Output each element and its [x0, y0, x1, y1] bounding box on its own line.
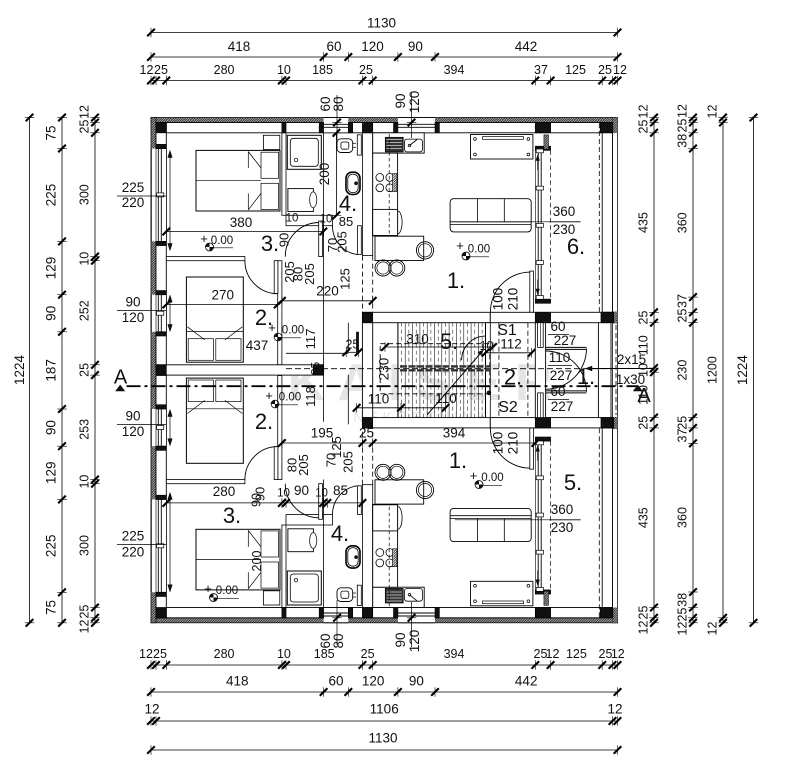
svg-text:125: 125 [338, 268, 353, 290]
svg-text:110: 110 [549, 350, 571, 365]
svg-text:S1: S1 [497, 322, 517, 339]
svg-text:0.00: 0.00 [282, 325, 304, 337]
svg-text:25: 25 [676, 416, 690, 430]
svg-text:6.: 6. [567, 234, 585, 259]
svg-text:435: 435 [637, 507, 651, 528]
svg-text:227: 227 [551, 399, 574, 414]
svg-text:220: 220 [122, 545, 145, 560]
svg-text:435: 435 [637, 212, 651, 233]
svg-text:310: 310 [406, 332, 429, 347]
svg-text:5.: 5. [564, 470, 582, 495]
svg-text:10: 10 [78, 252, 92, 266]
svg-text:227: 227 [554, 333, 577, 348]
svg-text:200: 200 [250, 551, 264, 572]
svg-text:394: 394 [443, 426, 466, 441]
svg-text:1224: 1224 [735, 355, 750, 386]
svg-text:90: 90 [409, 674, 424, 689]
svg-text:12: 12 [144, 702, 159, 717]
svg-text:12: 12 [613, 63, 627, 77]
svg-text:12: 12 [706, 105, 720, 119]
svg-text:360: 360 [551, 502, 574, 517]
svg-text:120: 120 [407, 630, 422, 653]
svg-text:418: 418 [226, 674, 249, 689]
svg-text:120: 120 [122, 310, 145, 325]
svg-text:12: 12 [546, 647, 560, 661]
svg-text:25: 25 [153, 647, 167, 661]
svg-text:230: 230 [676, 360, 690, 381]
svg-text:205: 205 [302, 263, 317, 285]
svg-text:25: 25 [359, 63, 373, 77]
svg-text:12: 12 [706, 622, 720, 636]
svg-text:90: 90 [393, 93, 408, 108]
svg-text:90: 90 [125, 295, 140, 310]
svg-text:300: 300 [78, 184, 92, 205]
svg-text:25: 25 [78, 363, 92, 377]
svg-text:205: 205 [335, 231, 350, 253]
svg-text:418: 418 [228, 39, 251, 54]
svg-text:25: 25 [637, 311, 651, 325]
svg-text:253: 253 [78, 419, 92, 440]
svg-text:37: 37 [676, 429, 690, 443]
svg-text:90: 90 [44, 306, 59, 321]
svg-text:80: 80 [331, 633, 346, 648]
svg-text:270: 270 [212, 288, 235, 303]
svg-text:0.00: 0.00 [279, 392, 301, 404]
svg-text:+: + [265, 388, 273, 403]
svg-text:225: 225 [122, 180, 145, 195]
svg-text:2.: 2. [255, 409, 273, 434]
svg-text:10: 10 [315, 488, 328, 500]
svg-text:4.: 4. [331, 521, 349, 546]
svg-text:1224: 1224 [12, 354, 27, 385]
svg-text:38: 38 [676, 593, 690, 607]
svg-text:12: 12 [611, 647, 625, 661]
svg-text:25: 25 [154, 63, 168, 77]
svg-text:394: 394 [444, 647, 465, 661]
svg-text:117: 117 [303, 329, 318, 350]
svg-text:227: 227 [550, 368, 573, 383]
svg-text:38: 38 [676, 134, 690, 148]
svg-text:187: 187 [44, 359, 59, 382]
svg-text:360: 360 [553, 204, 576, 219]
svg-text:120: 120 [407, 91, 422, 114]
svg-text:25: 25 [78, 605, 92, 619]
svg-text:129: 129 [44, 257, 59, 280]
svg-text:+: + [470, 468, 478, 483]
svg-text:+: + [268, 320, 276, 335]
svg-text:10: 10 [286, 213, 299, 225]
svg-text:25: 25 [78, 120, 92, 134]
svg-text:25: 25 [637, 120, 651, 134]
svg-text:1106: 1106 [370, 702, 399, 717]
svg-text:280: 280 [214, 63, 235, 77]
svg-text:90: 90 [393, 632, 408, 647]
svg-text:185: 185 [312, 63, 333, 77]
svg-text:25: 25 [598, 63, 612, 77]
svg-text:25: 25 [676, 608, 690, 622]
svg-text:220: 220 [316, 284, 339, 299]
svg-text:280: 280 [213, 484, 236, 499]
svg-text:3.: 3. [223, 503, 241, 528]
svg-text:360: 360 [676, 507, 690, 528]
svg-text:1.: 1. [577, 364, 595, 389]
svg-text:90: 90 [253, 487, 268, 501]
svg-text:0.00: 0.00 [211, 235, 233, 247]
svg-text:90: 90 [408, 39, 423, 54]
svg-text:125: 125 [566, 647, 587, 661]
svg-text:25: 25 [361, 647, 375, 661]
svg-text:10: 10 [277, 647, 291, 661]
svg-text:0.00: 0.00 [468, 244, 490, 256]
svg-text:12: 12 [140, 63, 154, 77]
svg-text:12: 12 [676, 104, 690, 118]
svg-text:125: 125 [565, 63, 586, 77]
svg-text:129: 129 [44, 462, 59, 485]
svg-text:60: 60 [328, 674, 343, 689]
svg-text:25: 25 [676, 119, 690, 133]
svg-text:25: 25 [359, 426, 374, 441]
svg-text:230: 230 [551, 520, 574, 535]
svg-text:1.: 1. [449, 448, 467, 473]
svg-text:300: 300 [78, 535, 92, 556]
svg-text:437: 437 [246, 338, 269, 353]
svg-text:S2: S2 [498, 399, 518, 416]
svg-text:1.: 1. [447, 268, 465, 293]
svg-text:394: 394 [444, 63, 465, 77]
svg-text:5.: 5. [440, 329, 458, 354]
svg-text:220: 220 [122, 195, 145, 210]
svg-text:442: 442 [515, 39, 538, 54]
svg-text:12: 12 [607, 702, 622, 717]
svg-text:37: 37 [534, 63, 548, 77]
svg-text:12: 12 [637, 105, 651, 119]
svg-text:120: 120 [122, 424, 145, 439]
svg-text:0.00: 0.00 [481, 472, 503, 484]
svg-text:225: 225 [44, 184, 59, 207]
svg-text:10: 10 [320, 214, 333, 226]
svg-text:125: 125 [329, 436, 344, 458]
svg-text:360: 360 [676, 212, 690, 233]
svg-text:A: A [114, 367, 128, 389]
svg-text:10: 10 [78, 475, 92, 489]
svg-text:80: 80 [331, 96, 346, 111]
svg-text:110: 110 [637, 385, 651, 405]
svg-text:205: 205 [296, 454, 311, 476]
svg-text:25: 25 [676, 309, 690, 323]
svg-text:280: 280 [214, 647, 235, 661]
svg-text:90: 90 [277, 233, 292, 247]
svg-text:120: 120 [361, 39, 384, 54]
svg-text:118: 118 [303, 386, 318, 407]
svg-text:85: 85 [333, 483, 348, 498]
svg-text:120: 120 [362, 674, 385, 689]
svg-text:85: 85 [339, 214, 353, 229]
svg-text:12: 12 [139, 647, 153, 661]
svg-text:110: 110 [368, 392, 390, 407]
svg-text:12: 12 [676, 622, 690, 636]
svg-text:12: 12 [78, 105, 92, 119]
svg-text:0.00: 0.00 [216, 585, 238, 597]
svg-text:12: 12 [78, 620, 92, 634]
svg-text:90: 90 [294, 483, 309, 498]
svg-text:380: 380 [230, 215, 253, 230]
svg-text:100: 100 [491, 288, 506, 311]
svg-text:25: 25 [637, 416, 651, 430]
svg-text:205: 205 [282, 261, 297, 283]
svg-text:4.: 4. [339, 191, 357, 216]
svg-text:225: 225 [122, 529, 145, 544]
svg-text:12: 12 [637, 621, 651, 635]
svg-text:75: 75 [44, 600, 59, 615]
svg-text:1130: 1130 [367, 16, 396, 31]
svg-text:90: 90 [44, 420, 59, 435]
svg-text:110: 110 [435, 391, 457, 406]
svg-text:+: + [456, 238, 464, 253]
svg-text:252: 252 [78, 300, 92, 321]
svg-text:10: 10 [637, 363, 651, 377]
svg-text:25: 25 [637, 606, 651, 620]
svg-text:10: 10 [277, 488, 290, 500]
svg-text:37: 37 [676, 294, 690, 308]
svg-text:1200: 1200 [706, 356, 720, 384]
svg-text:110: 110 [637, 335, 651, 355]
svg-text:75: 75 [44, 125, 59, 140]
svg-text:210: 210 [506, 288, 521, 311]
svg-text:60: 60 [550, 319, 565, 334]
svg-text:10: 10 [277, 63, 291, 77]
svg-text:+: + [204, 581, 212, 596]
svg-text:60: 60 [326, 39, 341, 54]
svg-text:442: 442 [515, 674, 538, 689]
svg-text:200: 200 [317, 163, 332, 186]
svg-text:90: 90 [125, 409, 140, 424]
svg-text:1130: 1130 [368, 731, 397, 746]
svg-text:225: 225 [44, 535, 59, 558]
